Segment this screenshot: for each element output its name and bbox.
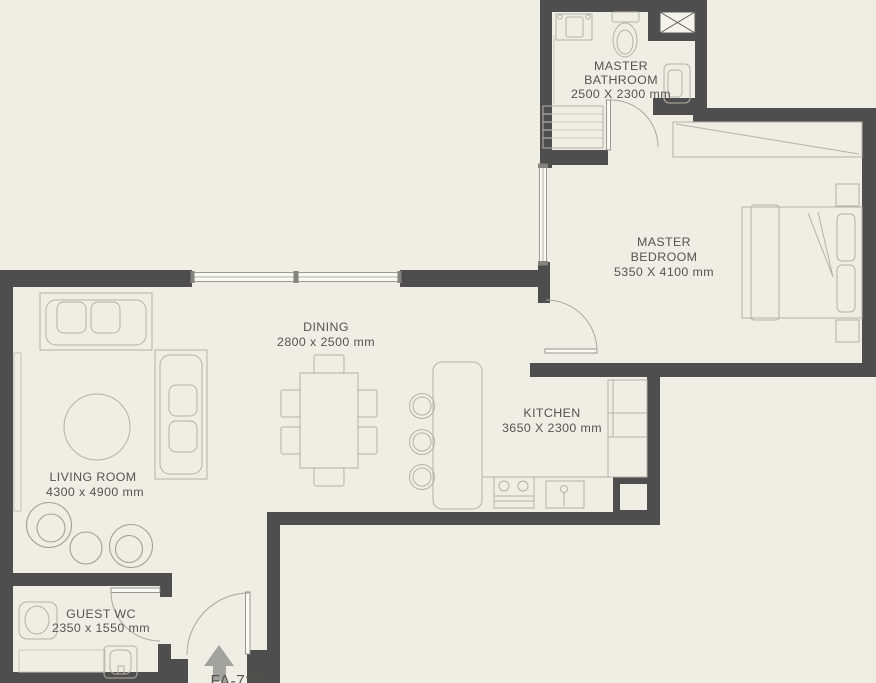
window-bedroom-left [538,164,548,266]
wall-entry-left-jamb [171,659,188,683]
room-name: MASTER [637,235,691,249]
label-guest-wc: GUEST WC 2350 x 1550 mm [52,607,150,635]
wall-wc-top [0,573,172,586]
room-dims: 2500 X 2300 mm [571,87,671,101]
wall-main-bottom [267,512,660,525]
wall-bathroom-top [540,0,705,12]
wall-bedroom-bottom [530,363,876,377]
wall-bathroom-left [540,0,552,168]
room-name: GUEST WC [66,607,136,621]
wall-top-right-of-window [400,270,550,287]
wall-entry-right-vertical [267,512,280,683]
room-dims: 3650 X 2300 mm [502,421,602,435]
window-living-top [191,271,402,283]
unit-label: FA-720 [211,673,264,683]
kitchen-duct-opening [620,484,647,510]
room-name: KITCHEN [523,406,580,420]
service-shaft [660,12,695,33]
label-living-room: LIVING ROOM 4300 x 4900 mm [46,470,144,499]
room-dims: 4300 x 4900 mm [46,485,144,499]
room-dims: 2800 x 2500 mm [277,335,375,349]
wall-bedroom-top [693,108,876,122]
wall-wc-right-stub [160,573,172,597]
room-dims: 5350 X 4100 mm [614,265,714,279]
wall-bottom-left [0,672,160,683]
wall-left-exterior [0,270,13,683]
room-name: MASTER [594,59,648,73]
wall-top-left [0,270,192,287]
room-name: BATHROOM [584,73,658,87]
wall-shaft-bottom [648,33,705,41]
room-dims: 2350 x 1550 mm [52,621,150,635]
wall-wc-right-lower [158,644,171,683]
floor-plan-svg: FA-720 MASTER BATHROOM 2500 X 2300 mm MA… [0,0,876,683]
room-name: BEDROOM [631,250,698,264]
wall-bathroom-bottom-a [540,150,608,165]
wall-bedroom-door-stub [538,262,550,303]
room-name: LIVING ROOM [49,470,136,484]
wall-bedroom-right [862,108,876,377]
floor-plan: FA-720 MASTER BATHROOM 2500 X 2300 mm MA… [0,0,876,683]
room-name: DINING [303,320,349,334]
